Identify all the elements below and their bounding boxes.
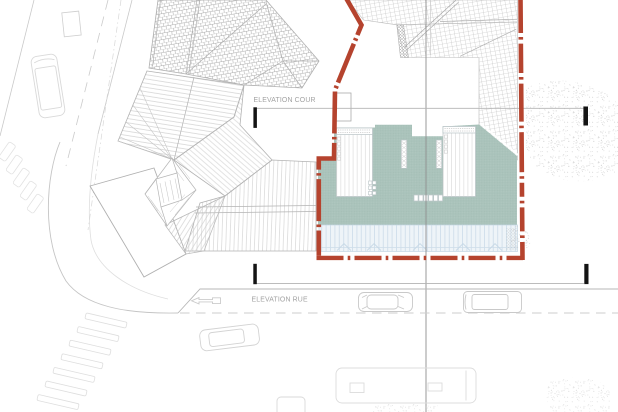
svg-text:ELEVATION RUE: ELEVATION RUE: [252, 297, 308, 304]
svg-text:ELEVATION COUR: ELEVATION COUR: [254, 97, 316, 104]
